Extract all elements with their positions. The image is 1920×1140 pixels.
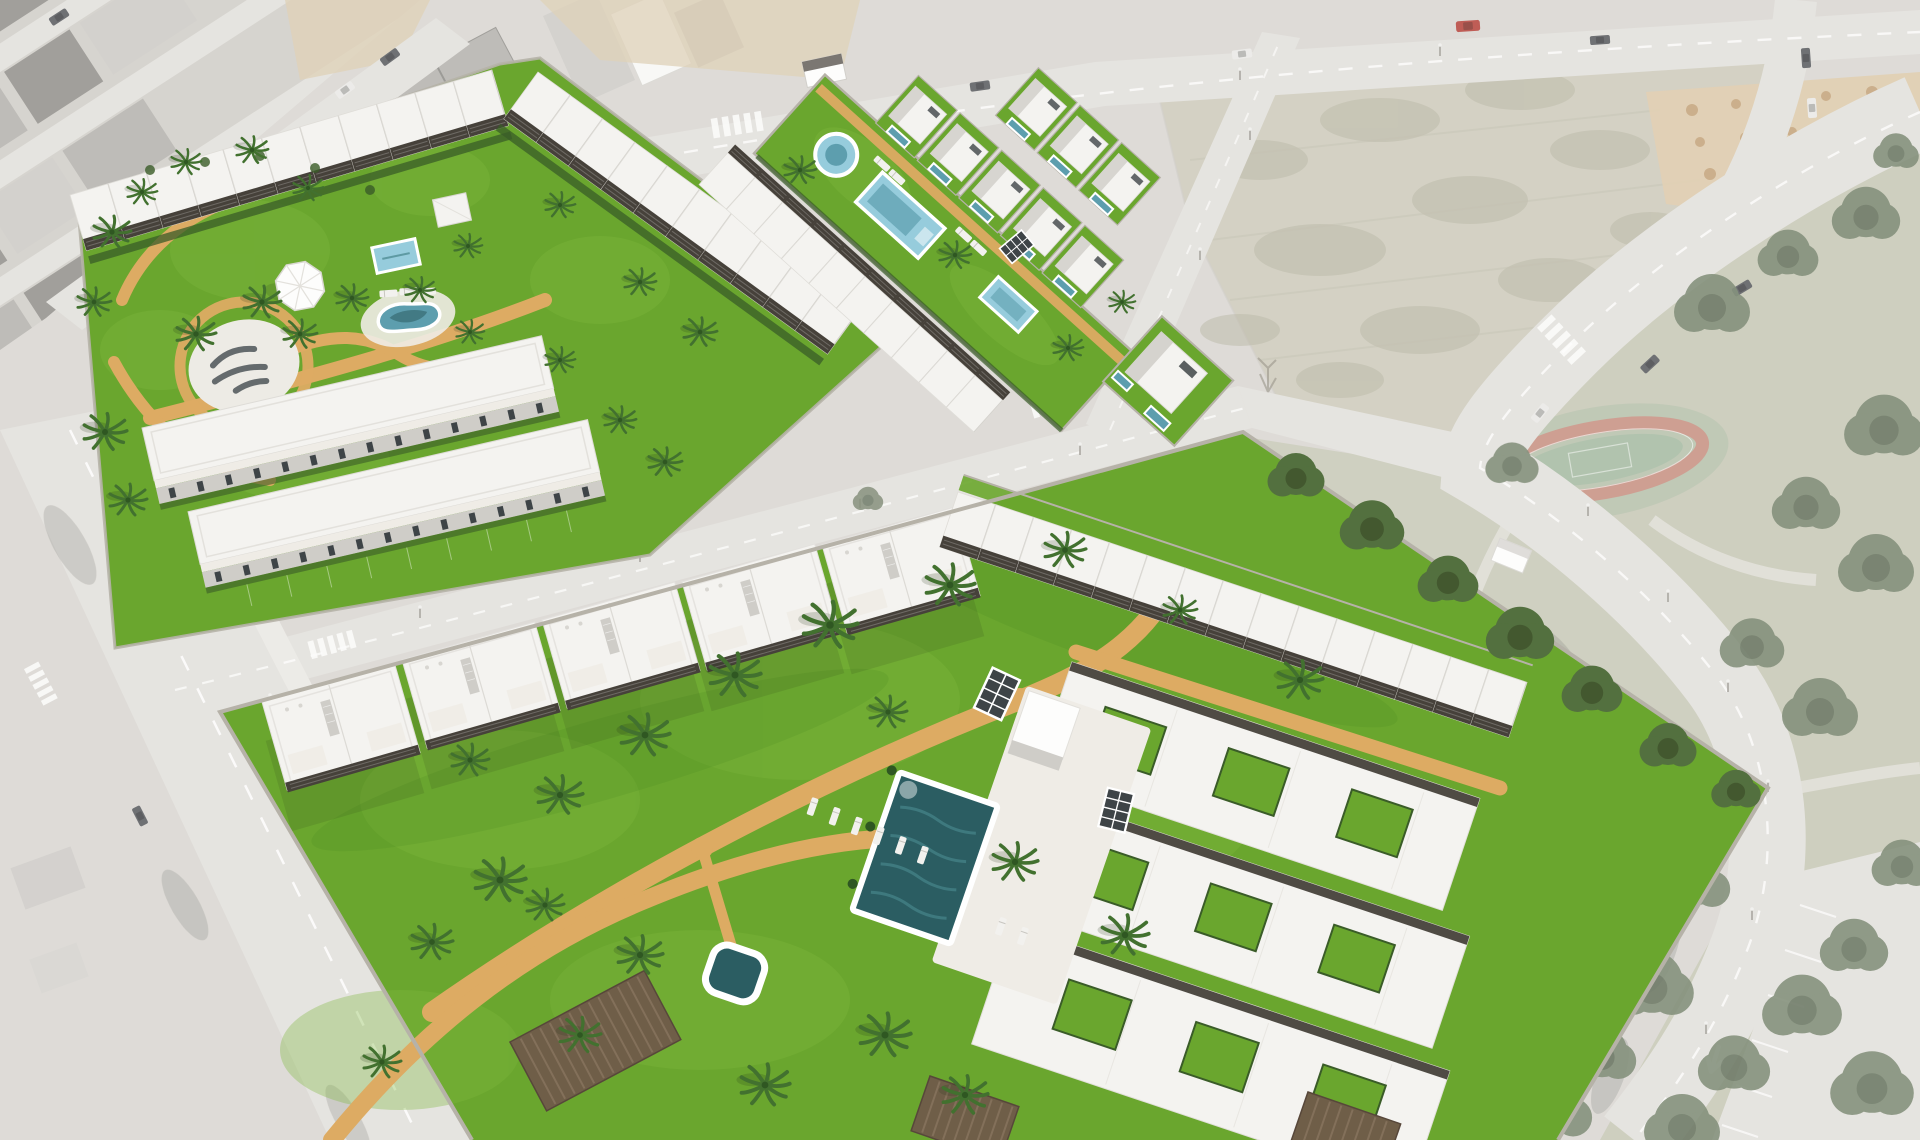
sun-lounger [379, 289, 397, 297]
aerial-render: Aerial 3D architectural render of a new … [0, 0, 1920, 1140]
aerial-render-stage: Aerial 3D architectural render of a new … [0, 0, 1920, 1140]
